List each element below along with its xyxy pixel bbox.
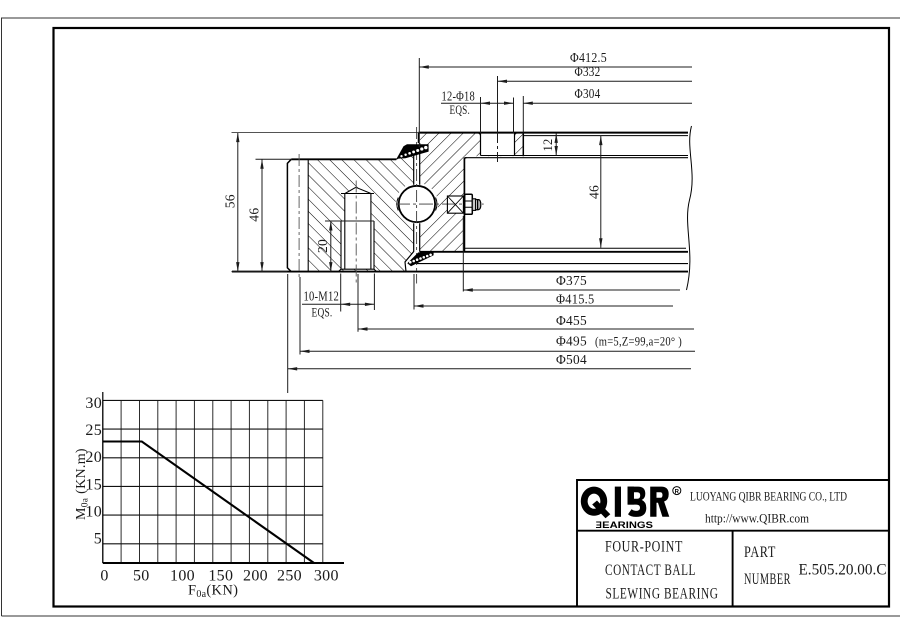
svg-text:M0a (KN.m): M0a (KN.m) — [74, 448, 91, 520]
svg-text:(m=5,Z=99,a=20° ): (m=5,Z=99,a=20° ) — [595, 334, 682, 348]
svg-text:10-M12: 10-M12 — [304, 289, 340, 304]
svg-text:25: 25 — [85, 422, 102, 439]
svg-text:20: 20 — [315, 239, 330, 253]
svg-text:Φ504: Φ504 — [556, 352, 587, 367]
svg-text:200: 200 — [243, 568, 268, 585]
svg-text:46: 46 — [587, 185, 602, 199]
svg-text:E: E — [596, 519, 602, 530]
svg-text:50: 50 — [133, 568, 150, 585]
svg-text:12-Φ18: 12-Φ18 — [442, 89, 476, 104]
svg-text:Φ455: Φ455 — [556, 313, 587, 328]
svg-text:56: 56 — [223, 194, 238, 208]
svg-text:30: 30 — [85, 395, 102, 412]
svg-text:12: 12 — [541, 138, 555, 151]
svg-text:SLEWING BEARING: SLEWING BEARING — [606, 586, 719, 603]
svg-text:Φ375: Φ375 — [556, 273, 587, 288]
svg-text:F0a(KN): F0a(KN) — [188, 583, 238, 601]
svg-text:R: R — [675, 489, 680, 495]
svg-text:Φ304: Φ304 — [575, 86, 601, 101]
svg-text:300: 300 — [314, 568, 339, 585]
svg-text:Φ415.5: Φ415.5 — [556, 292, 595, 307]
svg-text:PART: PART — [744, 544, 776, 561]
svg-text:Φ412.5: Φ412.5 — [570, 50, 607, 65]
svg-text:FOUR-POINT: FOUR-POINT — [605, 538, 683, 555]
svg-text:EQS.: EQS. — [450, 103, 471, 117]
svg-text:Φ332: Φ332 — [575, 64, 601, 79]
svg-text:CONTACT BALL: CONTACT BALL — [605, 562, 696, 579]
svg-text:NUMBER: NUMBER — [744, 571, 791, 588]
svg-text:LUOYANG QIBR BEARING CO., LTD: LUOYANG QIBR BEARING CO., LTD — [690, 489, 847, 504]
svg-text:http://www.QIBR.com: http://www.QIBR.com — [705, 510, 809, 525]
svg-text:EARINGS: EARINGS — [602, 519, 653, 530]
svg-text:5: 5 — [94, 531, 102, 548]
svg-text:E.505.20.00.C: E.505.20.00.C — [799, 561, 887, 578]
svg-text:Φ495: Φ495 — [556, 333, 587, 348]
svg-text:46: 46 — [247, 208, 262, 222]
svg-text:0: 0 — [100, 568, 108, 585]
svg-text:250: 250 — [277, 568, 302, 585]
svg-text:EQS.: EQS. — [312, 306, 333, 320]
